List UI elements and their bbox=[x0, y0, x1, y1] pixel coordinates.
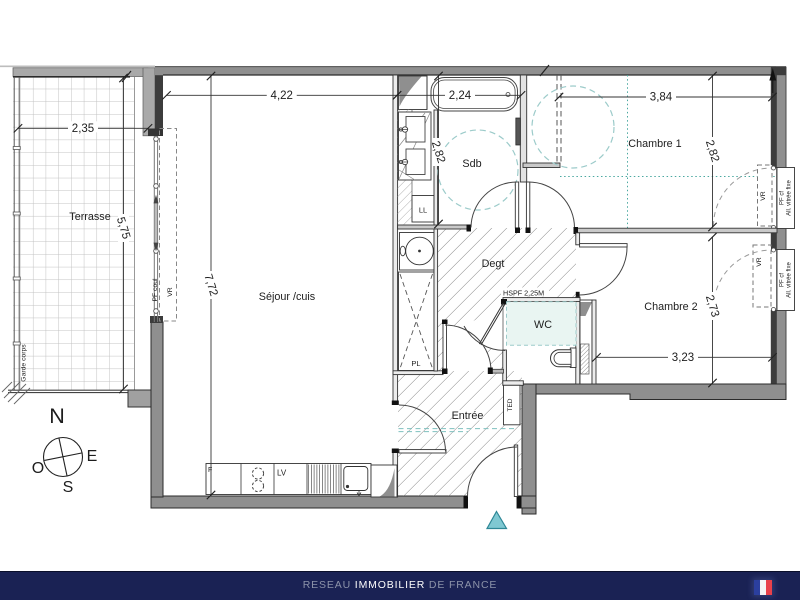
svg-text:LL: LL bbox=[419, 206, 427, 215]
svg-text:VR: VR bbox=[760, 191, 767, 201]
svg-text:PF cf: PF cf bbox=[780, 191, 786, 205]
svg-text:WC: WC bbox=[534, 319, 552, 331]
svg-text:F: F bbox=[208, 467, 212, 474]
svg-text:VR: VR bbox=[756, 257, 763, 267]
svg-text:Chambre 1: Chambre 1 bbox=[628, 138, 681, 150]
svg-text:TED: TED bbox=[507, 398, 514, 411]
svg-text:PL: PL bbox=[411, 359, 420, 368]
svg-text:Chambre 2: Chambre 2 bbox=[644, 301, 697, 313]
svg-text:3,84: 3,84 bbox=[650, 92, 673, 104]
svg-text:VR: VR bbox=[167, 287, 174, 297]
svg-text:2,35: 2,35 bbox=[72, 123, 94, 135]
svg-text:7,72: 7,72 bbox=[201, 273, 219, 298]
svg-text:2,24: 2,24 bbox=[449, 90, 472, 102]
svg-text:E: E bbox=[87, 448, 98, 465]
svg-text:Terrasse: Terrasse bbox=[69, 211, 110, 223]
svg-text:LV: LV bbox=[277, 469, 287, 478]
svg-text:2,82: 2,82 bbox=[429, 140, 447, 165]
svg-text:3,23: 3,23 bbox=[672, 352, 694, 364]
svg-text:Sdb: Sdb bbox=[462, 158, 481, 170]
svg-text:2,73: 2,73 bbox=[703, 294, 721, 319]
svg-text:Entrée: Entrée bbox=[452, 410, 484, 422]
svg-text:4,22: 4,22 bbox=[271, 90, 293, 102]
svg-text:PF coul: PF coul bbox=[152, 278, 159, 302]
svg-text:All. vitrée fixe: All. vitrée fixe bbox=[787, 180, 793, 216]
svg-text:2,82: 2,82 bbox=[703, 139, 721, 164]
svg-text:HSPF 2,25M: HSPF 2,25M bbox=[503, 289, 544, 298]
svg-text:Garde corps: Garde corps bbox=[21, 344, 28, 382]
svg-text:S: S bbox=[63, 479, 74, 496]
svg-text:Séjour /cuis: Séjour /cuis bbox=[259, 291, 316, 303]
svg-text:O: O bbox=[32, 460, 44, 477]
svg-text:N: N bbox=[49, 404, 65, 428]
svg-text:Degt: Degt bbox=[482, 258, 505, 270]
svg-text:All. vitrée fixe: All. vitrée fixe bbox=[787, 262, 793, 298]
svg-text:PF cf: PF cf bbox=[780, 273, 786, 287]
